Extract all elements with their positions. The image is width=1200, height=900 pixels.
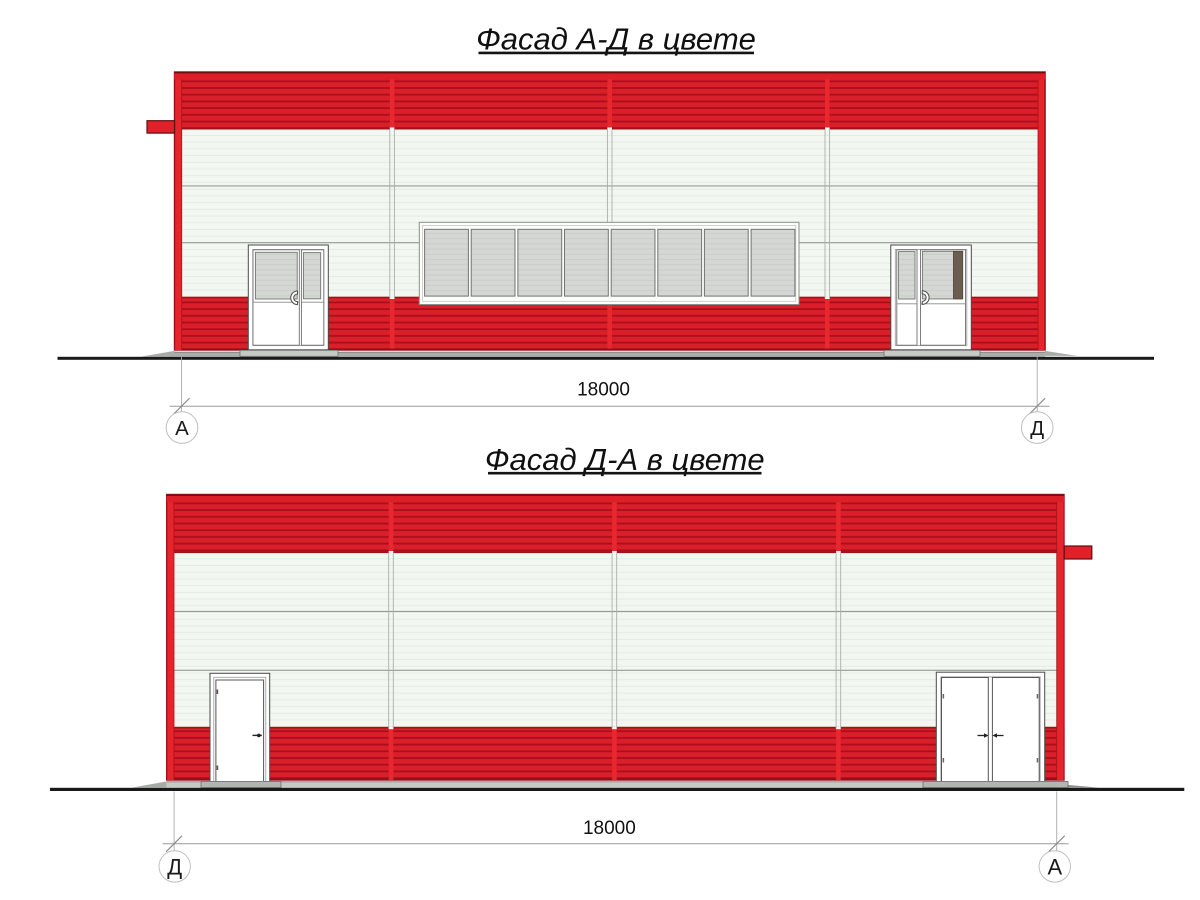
svg-text:18000: 18000	[583, 818, 636, 839]
svg-text:А: А	[175, 417, 189, 440]
svg-text:Д: Д	[167, 854, 182, 879]
svg-text:Фасад Д-А в цвете: Фасад Д-А в цвете	[485, 442, 765, 477]
svg-text:А: А	[1047, 854, 1062, 879]
svg-text:Фасад А-Д в цвете: Фасад А-Д в цвете	[476, 22, 756, 57]
svg-text:18000: 18000	[577, 380, 630, 401]
svg-text:Д: Д	[1030, 417, 1044, 440]
